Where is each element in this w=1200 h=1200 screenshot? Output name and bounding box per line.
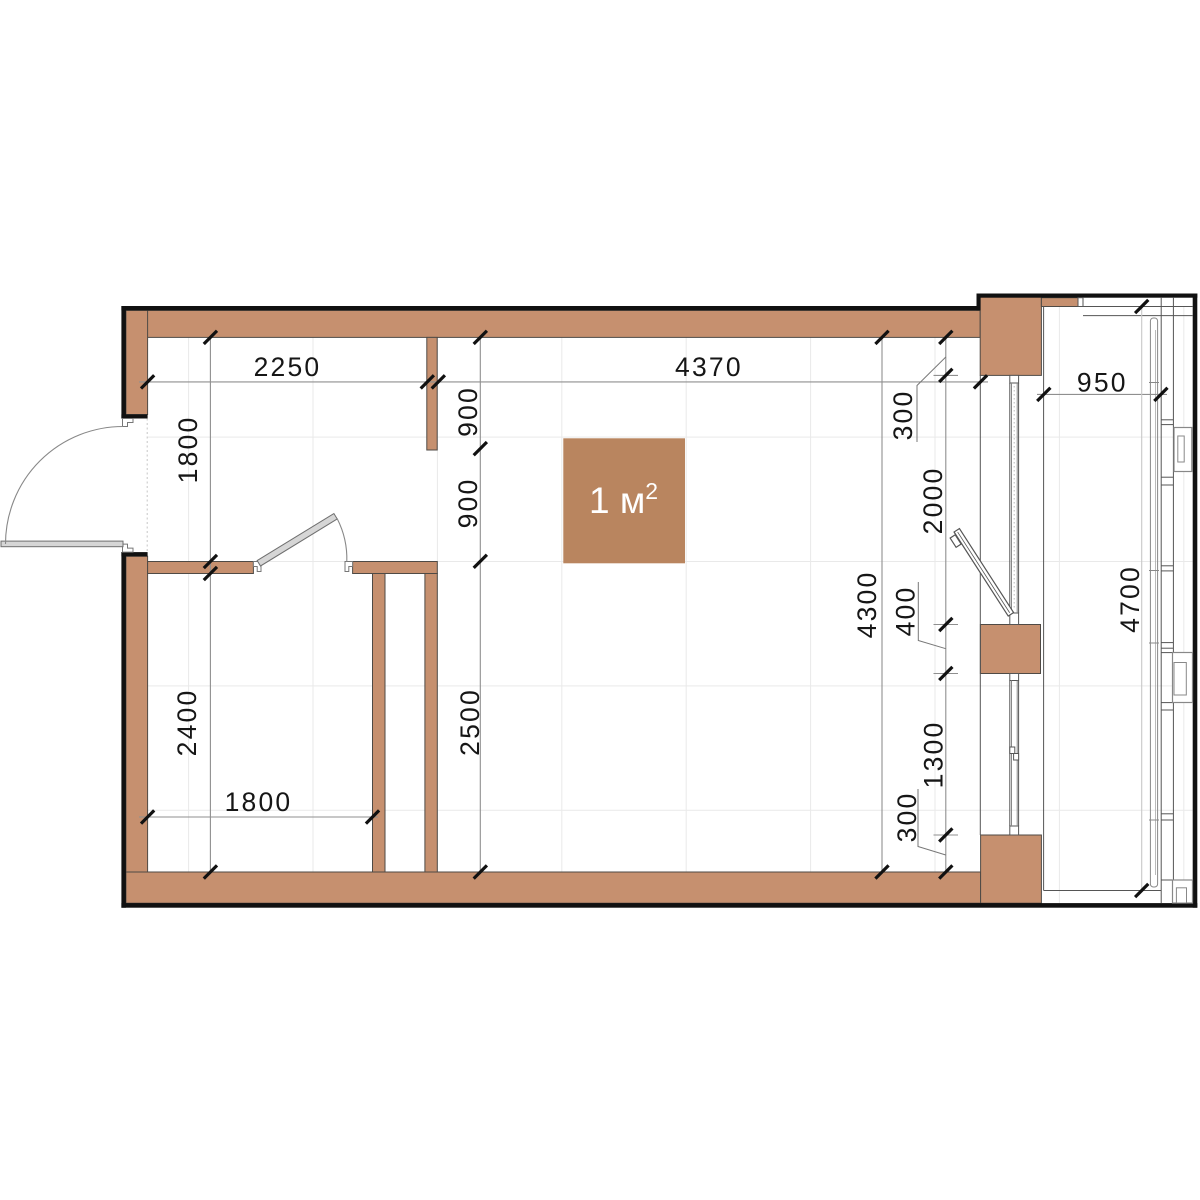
svg-text:4700: 4700 <box>1115 565 1145 633</box>
svg-text:1800: 1800 <box>225 787 293 817</box>
svg-text:300: 300 <box>888 390 918 441</box>
svg-text:300: 300 <box>892 792 922 843</box>
svg-text:2000: 2000 <box>918 467 948 535</box>
svg-text:900: 900 <box>453 386 483 437</box>
svg-text:1800: 1800 <box>173 416 203 484</box>
svg-text:2400: 2400 <box>172 689 202 757</box>
svg-text:2250: 2250 <box>254 352 322 382</box>
svg-text:2500: 2500 <box>455 688 485 756</box>
svg-text:400: 400 <box>890 586 920 637</box>
svg-text:950: 950 <box>1077 368 1128 398</box>
svg-text:4300: 4300 <box>852 571 882 639</box>
svg-text:900: 900 <box>453 478 483 529</box>
svg-text:4370: 4370 <box>675 352 743 382</box>
svg-text:1300: 1300 <box>918 721 948 789</box>
